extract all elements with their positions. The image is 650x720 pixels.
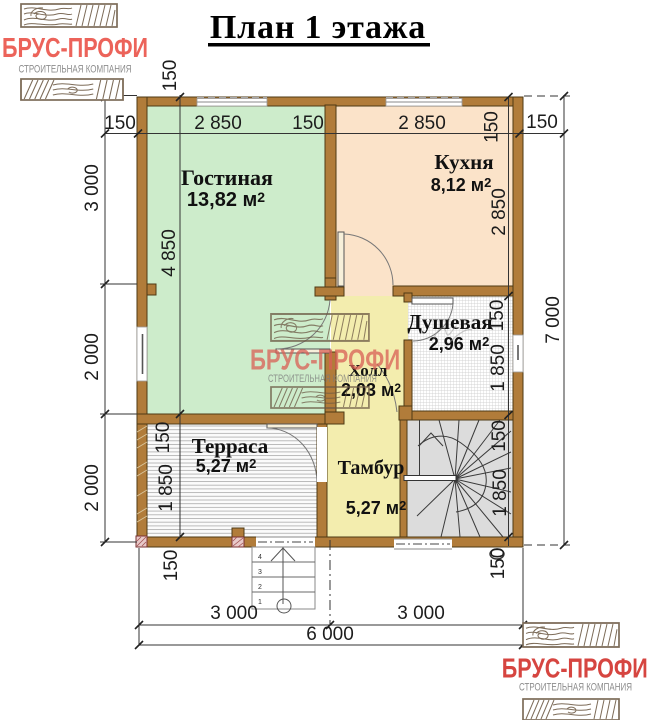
- svg-text:4 850: 4 850: [159, 229, 180, 277]
- svg-text:1 850: 1 850: [156, 464, 177, 512]
- svg-text:3: 3: [258, 569, 262, 576]
- svg-text:6 000: 6 000: [306, 624, 354, 645]
- svg-text:150: 150: [487, 300, 508, 332]
- svg-text:2,96 м2: 2,96 м2: [429, 334, 490, 354]
- svg-text:БРУС-ПРОФИ: БРУС-ПРОФИ: [2, 34, 148, 64]
- svg-text:150: 150: [161, 550, 182, 582]
- svg-text:1 850: 1 850: [488, 344, 509, 392]
- svg-text:150: 150: [104, 113, 136, 134]
- svg-text:13,82 м2: 13,82 м2: [187, 189, 265, 211]
- svg-text:3 000: 3 000: [210, 603, 258, 624]
- svg-text:150: 150: [526, 112, 558, 133]
- svg-text:СТРОИТЕЛЬНАЯ КОМПАНИЯ: СТРОИТЕЛЬНАЯ КОМПАНИЯ: [19, 63, 132, 76]
- svg-text:План 1 этажа: План 1 этажа: [210, 9, 426, 46]
- svg-text:СТРОИТЕЛЬНАЯ КОМПАНИЯ: СТРОИТЕЛЬНАЯ КОМПАНИЯ: [519, 681, 632, 694]
- svg-text:5,27 м2: 5,27 м2: [196, 456, 257, 476]
- svg-text:150: 150: [153, 422, 174, 454]
- svg-text:1: 1: [258, 599, 262, 606]
- svg-text:2 850: 2 850: [194, 113, 242, 134]
- svg-text:1 850: 1 850: [490, 469, 511, 517]
- svg-text:2 850: 2 850: [398, 113, 446, 134]
- svg-text:Тамбур: Тамбур: [338, 457, 405, 479]
- svg-text:150: 150: [292, 113, 324, 134]
- svg-text:2 000: 2 000: [82, 464, 103, 512]
- svg-text:БРУС-ПРОФИ: БРУС-ПРОФИ: [250, 345, 400, 376]
- svg-text:Гостиная: Гостиная: [181, 165, 273, 190]
- svg-text:2: 2: [258, 584, 262, 591]
- svg-text:5,27 м2: 5,27 м2: [346, 498, 407, 518]
- svg-text:7 000: 7 000: [543, 296, 564, 344]
- svg-text:Терраса: Терраса: [192, 434, 269, 458]
- svg-text:3 000: 3 000: [82, 164, 103, 212]
- svg-text:2 850: 2 850: [489, 188, 510, 236]
- svg-text:3 000: 3 000: [397, 603, 445, 624]
- svg-text:150: 150: [489, 420, 510, 452]
- svg-text:2 000: 2 000: [82, 333, 103, 381]
- svg-text:СТРОИТЕЛЬНАЯ КОМПАНИЯ: СТРОИТЕЛЬНАЯ КОМПАНИЯ: [268, 373, 377, 386]
- svg-text:4: 4: [258, 554, 262, 561]
- svg-text:БРУС-ПРОФИ: БРУС-ПРОФИ: [502, 654, 648, 684]
- svg-text:150: 150: [482, 111, 503, 143]
- svg-text:8,12 м2: 8,12 м2: [431, 175, 492, 195]
- svg-text:Душевая: Душевая: [407, 310, 492, 334]
- svg-text:Кухня: Кухня: [434, 150, 493, 174]
- svg-text:150: 150: [160, 60, 181, 92]
- svg-text:150: 150: [488, 548, 509, 580]
